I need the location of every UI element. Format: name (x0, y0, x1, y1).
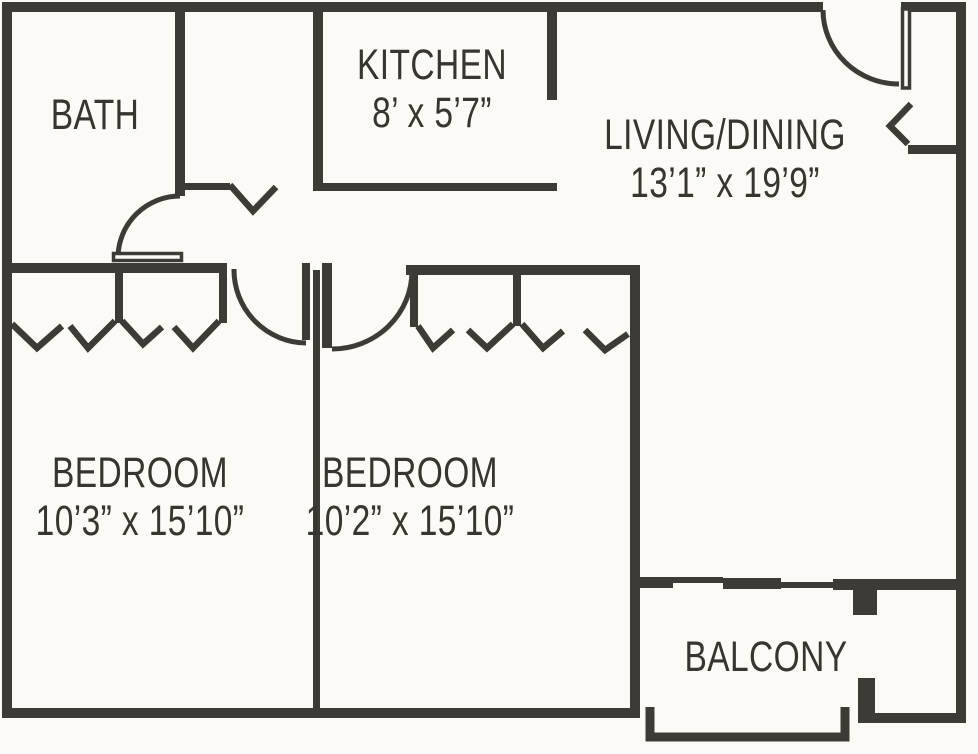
room-dimensions: 8’ x 5’7” (357, 89, 507, 137)
bedroom2-closet-chevron (585, 330, 628, 350)
bedroom1-closet-wall (12, 263, 227, 273)
room-label-balcony: BALCONY (684, 633, 847, 681)
balcony-wall-b (723, 578, 781, 589)
railing-outline (650, 707, 845, 737)
room-name: BEDROOM (306, 449, 515, 497)
wall-segment-top-left (2, 2, 823, 12)
room-name: KITCHEN (357, 41, 507, 89)
kitchen-right-wall (547, 2, 557, 100)
bedroom-door-jamb-left (302, 263, 310, 340)
balcony-wall-stub (853, 588, 877, 615)
closet-partition (513, 275, 521, 326)
entry-closet-wall (908, 145, 956, 154)
bedroom2-closet-wall (406, 265, 640, 275)
room-label-bedroom-2: BEDROOM 10’2” x 15’10” (306, 449, 515, 545)
bedroom1-door-arc (234, 269, 306, 343)
entry-door-leaf (903, 9, 910, 88)
wall-segment-left (2, 2, 12, 718)
bedroom2-closet-chevron (418, 326, 453, 348)
bedroom2-closet-chevron (468, 324, 513, 348)
balcony-wall-a (630, 577, 673, 588)
bedroom2-door-arc (332, 271, 412, 349)
room-label-living-dining: LIVING/DINING 13’1” x 19’9” (604, 111, 846, 207)
hall-wall-stub (185, 183, 230, 190)
kitchen-left-wall (313, 2, 323, 191)
kitchen-bottom-wall (313, 183, 557, 191)
balcony-door-sill-b (781, 582, 833, 588)
entry-door-arc (823, 10, 899, 84)
room-dimensions: 10’3” x 15’10” (36, 497, 245, 545)
room-dimensions: 13’1” x 19’9” (604, 159, 846, 207)
room-name: LIVING/DINING (604, 111, 846, 159)
bath-door-arc (118, 196, 180, 257)
room-name: BEDROOM (36, 449, 245, 497)
bedroom1-closet-chevron (12, 324, 62, 348)
hall-bifold-chevron (230, 185, 276, 211)
room-label-bedroom-1: BEDROOM 10’3” x 15’10” (36, 449, 245, 545)
balcony-wall-c (833, 579, 956, 590)
closet-partition (219, 273, 227, 323)
room-label-bath: BATH (51, 91, 140, 139)
wall-segment-bottom-bedrooms (2, 708, 640, 718)
bedroom1-closet-chevron (122, 321, 162, 344)
bedroom-door-jamb-right (322, 263, 332, 348)
bedroom2-right-wall (630, 265, 640, 718)
room-dimensions: 10’2” x 15’10” (306, 497, 515, 545)
bath-right-wall (175, 2, 185, 196)
bedroom1-closet-chevron (70, 321, 115, 348)
room-name: BALCONY (684, 633, 847, 681)
room-label-kitchen: KITCHEN 8’ x 5’7” (357, 41, 507, 137)
balcony-railing (650, 707, 845, 737)
bath-door-leaf (114, 254, 182, 261)
closet-partition (115, 273, 123, 323)
wall-segment-right (956, 2, 966, 723)
bedroom1-closet-chevron (174, 321, 219, 348)
wall-segment-balcony-corner-stub (858, 678, 875, 718)
room-name: BATH (51, 91, 140, 139)
floor-plan: BATH KITCHEN 8’ x 5’7” LIVING/DINING 13’… (0, 0, 978, 754)
entry-closet-chevron (890, 104, 911, 144)
bedroom2-closet-chevron (522, 324, 563, 348)
balcony-door-sill-a (673, 577, 723, 583)
